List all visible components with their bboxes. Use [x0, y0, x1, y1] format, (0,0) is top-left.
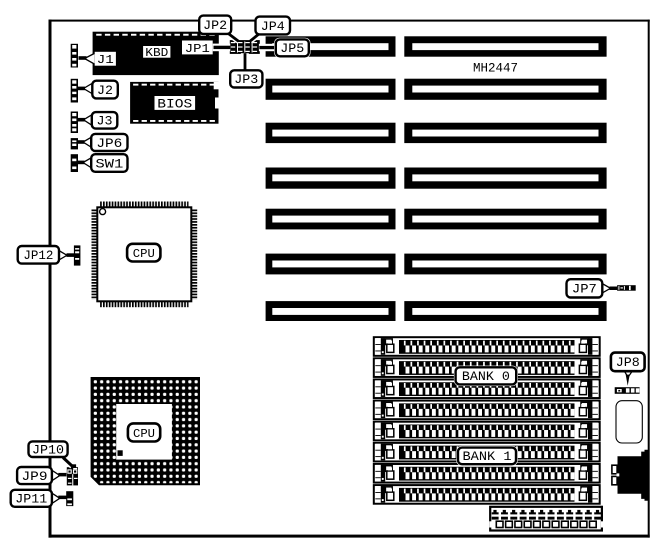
svg-text:JP5: JP5: [280, 42, 304, 56]
svg-text:JP6: JP6: [96, 137, 122, 151]
svg-text:JP7: JP7: [572, 283, 597, 297]
svg-text:BANK 1: BANK 1: [463, 450, 512, 464]
svg-text:JP4: JP4: [261, 20, 285, 34]
svg-text:JP12: JP12: [23, 249, 53, 263]
svg-text:JP8: JP8: [616, 356, 640, 370]
svg-text:BANK 0: BANK 0: [462, 370, 510, 384]
svg-text:KBD: KBD: [145, 46, 168, 60]
svg-text:J1: J1: [97, 53, 114, 67]
svg-text:JP9: JP9: [22, 470, 48, 484]
svg-text:JP3: JP3: [234, 73, 258, 87]
svg-text:J2: J2: [97, 84, 113, 98]
svg-text:JP11: JP11: [15, 493, 47, 507]
svg-text:JP1: JP1: [185, 42, 210, 56]
svg-text:CPU: CPU: [133, 427, 155, 441]
svg-text:MH2447: MH2447: [473, 62, 518, 76]
svg-text:CPU: CPU: [133, 247, 155, 261]
svg-text:J3: J3: [97, 115, 113, 129]
svg-text:SW1: SW1: [95, 157, 123, 171]
svg-text:JP10: JP10: [32, 444, 64, 458]
svg-text:JP2: JP2: [203, 19, 227, 33]
svg-text:BIOS: BIOS: [157, 97, 192, 111]
